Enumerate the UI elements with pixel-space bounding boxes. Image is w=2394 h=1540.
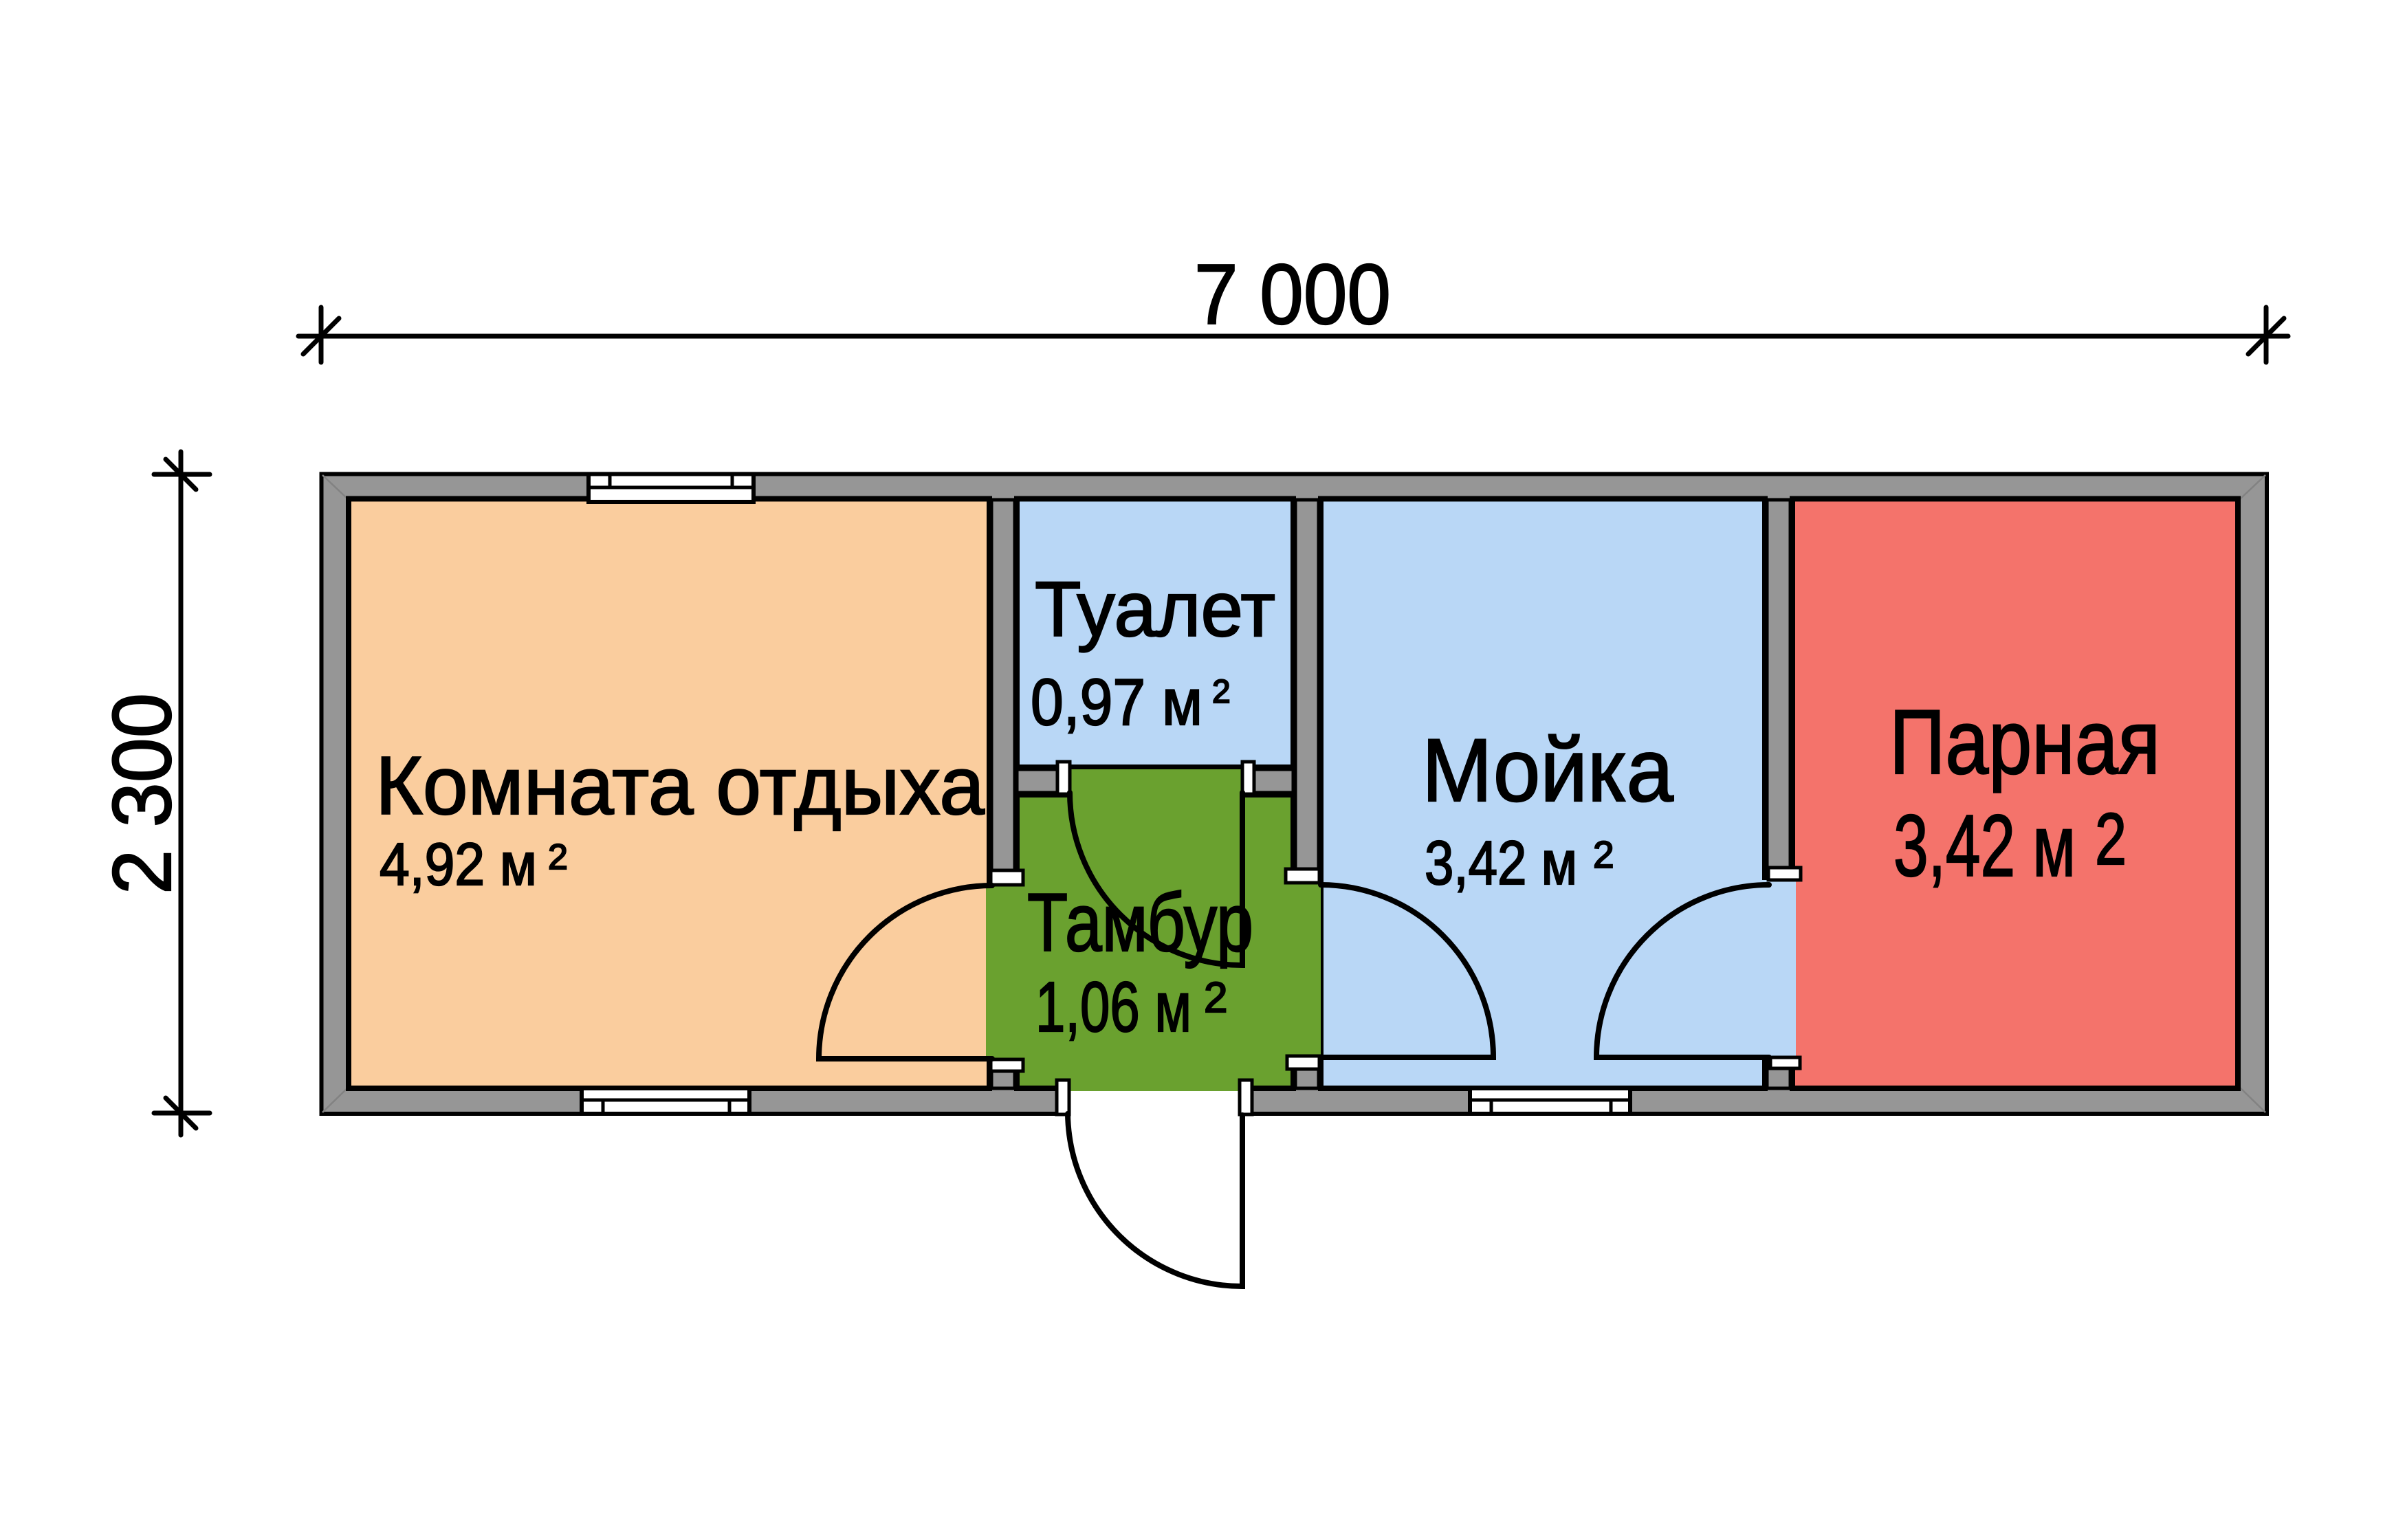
svg-text:2: 2: [1212, 674, 1231, 710]
svg-text:2: 2: [2095, 797, 2127, 880]
svg-text:0,97 м: 0,97 м: [1031, 665, 1203, 739]
svg-text:2: 2: [1204, 974, 1227, 1022]
svg-text:Туалет: Туалет: [1035, 566, 1275, 652]
svg-text:4,92 м: 4,92 м: [380, 831, 537, 898]
svg-text:Парная: Парная: [1889, 692, 2160, 793]
svg-text:3,42 м: 3,42 м: [1893, 797, 2076, 894]
svg-text:Тамбур: Тамбур: [1027, 877, 1253, 969]
svg-text:2 300: 2 300: [95, 693, 188, 894]
svg-text:Комната отдыха: Комната отдыха: [375, 740, 985, 832]
svg-text:3,42 м: 3,42 м: [1425, 829, 1577, 898]
svg-text:2: 2: [548, 837, 568, 877]
svg-text:Мойка: Мойка: [1422, 720, 1674, 820]
svg-text:7 000: 7 000: [1194, 247, 1391, 342]
svg-text:2: 2: [1593, 833, 1614, 876]
svg-text:1,06 м: 1,06 м: [1035, 967, 1191, 1046]
